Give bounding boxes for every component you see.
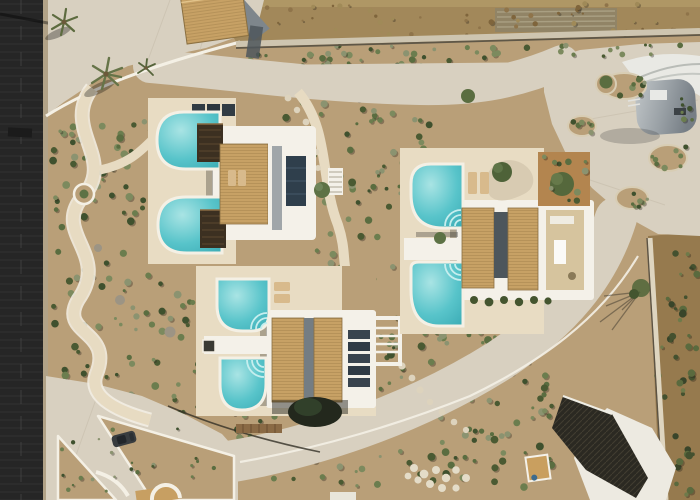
garden-kiosk — [525, 455, 550, 482]
stairs-a — [328, 168, 343, 195]
vault-shadow — [600, 128, 660, 144]
garden-corner-b — [342, 266, 376, 312]
skylight-b — [304, 318, 314, 402]
aerial-photo: Top-down drone photo of a Cycladic-style… — [0, 0, 700, 500]
courtyard-c — [494, 212, 508, 278]
roof-terrace-c — [544, 208, 586, 292]
vault-window — [650, 90, 667, 100]
spa-deck-box-1 — [197, 124, 223, 162]
pool-5 — [411, 164, 463, 228]
courtyard-a — [272, 146, 282, 230]
roof-c-east — [508, 208, 538, 290]
photo-canvas — [0, 0, 700, 500]
pool-6 — [411, 262, 463, 326]
shade-tree-b-crown — [294, 398, 322, 416]
road-patch — [8, 127, 32, 137]
field-terrace-steps — [495, 8, 617, 32]
plank-path-b — [236, 424, 282, 433]
roof-b-west — [272, 318, 304, 402]
villa-b — [196, 266, 400, 433]
white-structure-bottom — [330, 492, 356, 500]
solar-panels-b — [348, 330, 370, 387]
terrace-furniture-c — [554, 240, 566, 264]
roof-b-east — [314, 318, 342, 402]
upper-driveway — [150, 62, 562, 88]
roof-c-west — [462, 208, 494, 288]
spa-b — [203, 340, 215, 352]
pool-3 — [217, 279, 269, 331]
